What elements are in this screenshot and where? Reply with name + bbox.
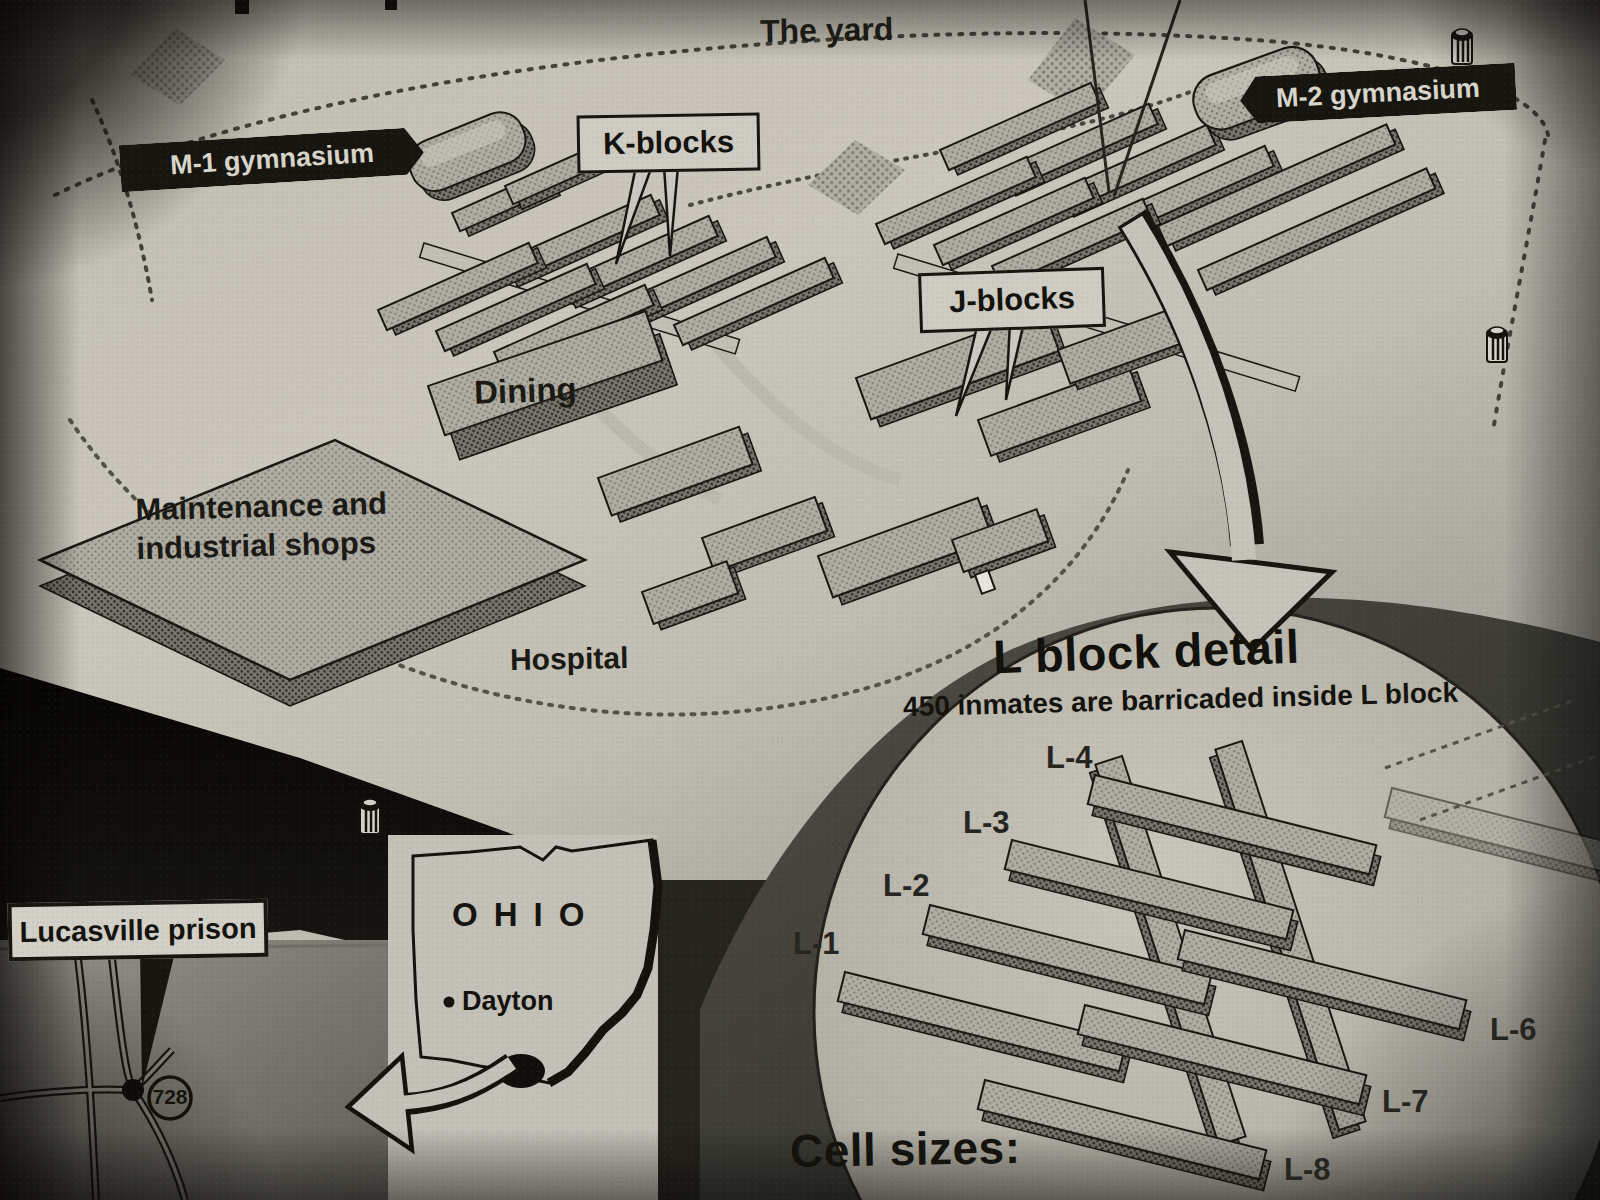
prison-site-dot — [122, 1079, 144, 1101]
block-label-l1: L-1 — [793, 926, 840, 962]
block-label-l6: L-6 — [1490, 1012, 1537, 1048]
guard-tower-icon — [385, 0, 397, 10]
guard-tower-icon — [359, 799, 381, 834]
hospital-buildings — [598, 425, 1056, 632]
lucasville-prison-callout: Lucasville prison — [8, 899, 269, 962]
guard-tower-icon — [1451, 29, 1473, 64]
cell-sizes-heading: Cell sizes: — [790, 1120, 1021, 1178]
l-block-detail-title: L block detail — [992, 619, 1300, 685]
lucasville-prison-label: Lucasville prison — [19, 911, 256, 948]
guard-tower-icon — [235, 0, 249, 14]
block-label-l8: L-8 — [1284, 1152, 1331, 1188]
dayton-dot — [444, 997, 455, 1008]
maintenance-label-line1: Maintenance and — [135, 486, 387, 528]
route-728-label: 728 — [146, 1085, 194, 1109]
maintenance-label: Maintenance and industrial shops — [135, 485, 388, 569]
ohio-inset — [348, 835, 658, 1200]
newspaper-prison-map: The yard M-1 gymnasium M-2 gymnasium K-b… — [0, 0, 1600, 1200]
road-map-inset — [0, 940, 390, 1200]
k-blocks-label: K-blocks — [603, 124, 735, 162]
ohio-state-label: OHIO — [452, 896, 600, 934]
m1-gymnasium-label: M-1 gymnasium — [169, 138, 375, 181]
m2-gymnasium-label: M-2 gymnasium — [1275, 73, 1480, 115]
block-label-l3: L-3 — [963, 805, 1010, 841]
block-label-l4: L-4 — [1046, 740, 1093, 776]
j-blocks-callout: J-blocks — [918, 267, 1106, 333]
block-label-l2: L-2 — [883, 868, 930, 904]
k-blocks-callout: K-blocks — [577, 112, 761, 173]
hospital-label: Hospital — [510, 641, 629, 677]
yard-label: The yard — [760, 11, 894, 50]
guard-tower-icon — [1486, 327, 1508, 362]
block-label-l7: L-7 — [1382, 1084, 1429, 1120]
dining-label: Dining — [473, 370, 577, 412]
maintenance-building — [40, 440, 585, 706]
maintenance-label-line2: industrial shops — [136, 525, 376, 566]
j-blocks-label: J-blocks — [949, 280, 1076, 320]
dayton-city-label: Dayton — [462, 986, 554, 1017]
